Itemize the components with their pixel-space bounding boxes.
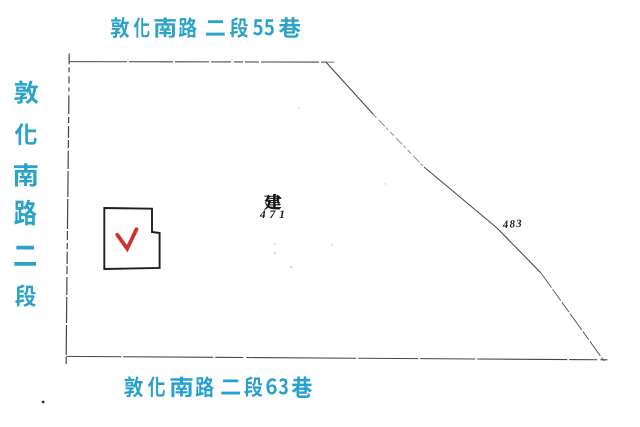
svg-text:483: 483: [501, 218, 523, 231]
svg-text:471: 471: [259, 208, 289, 221]
